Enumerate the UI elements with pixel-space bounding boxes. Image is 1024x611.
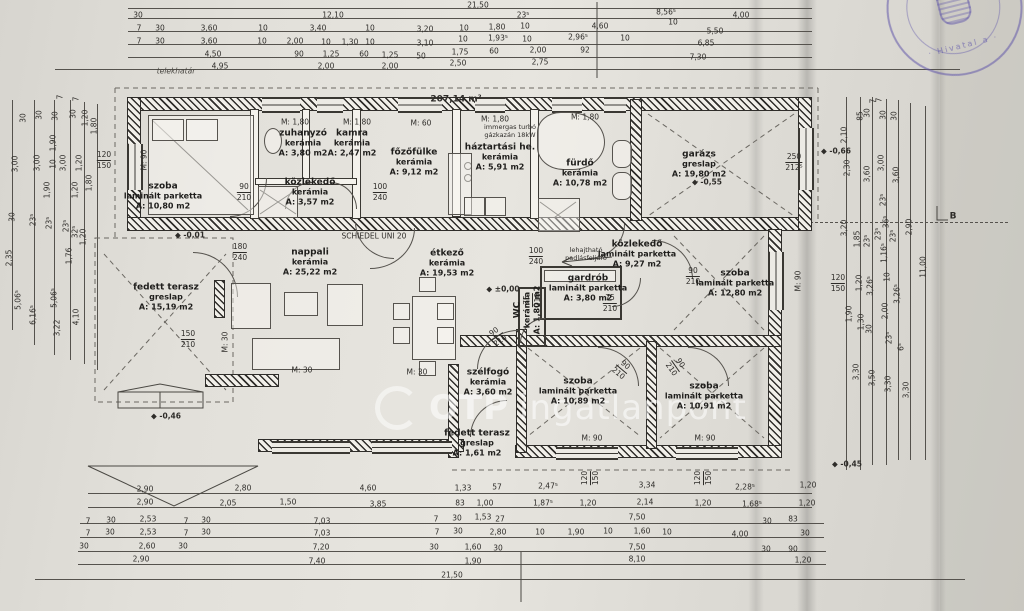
- dimension-label: telekhatár: [157, 67, 196, 75]
- dimension-label: 60: [359, 50, 369, 58]
- dimension-label: 1,20: [79, 229, 87, 246]
- dimension-label: 1,93⁵: [488, 34, 508, 42]
- dimension-label: 2,80: [490, 528, 507, 536]
- dimension-label: 1,20: [795, 556, 812, 564]
- dimension-label: 10: [668, 18, 678, 26]
- dimension-label: 10: [603, 527, 613, 535]
- dimension-label: 57: [492, 483, 502, 491]
- dimension-label: M: 90: [695, 434, 716, 442]
- dimension-label: 1,80: [489, 23, 506, 31]
- dimension-label: M: 1,80: [343, 118, 371, 126]
- dimension-label: 3,30: [884, 376, 892, 393]
- dimension-label: M: 1,80: [281, 118, 309, 126]
- dimension-label: 100240: [373, 183, 387, 201]
- dimension-label: 2,14: [637, 498, 654, 506]
- dimension-label: 3,34: [639, 481, 656, 489]
- dimension-label: 2,00: [530, 46, 547, 54]
- dimension-label: 30: [105, 528, 115, 536]
- label-layer: 21,503012,1023⁵8,56⁵4,007303,60103,40103…: [0, 0, 1024, 611]
- dimension-label: 7: [184, 517, 189, 525]
- dimension-label: 7: [137, 24, 142, 32]
- dimension-label: 1,20: [799, 499, 816, 507]
- dimension-label: 100240: [529, 247, 543, 265]
- dimension-label: 50: [416, 52, 426, 60]
- dimension-label: 1,90: [43, 182, 51, 199]
- room-label: nappalikerámiaA: 25,22 m2: [283, 247, 337, 276]
- dimension-label: 30: [452, 514, 462, 522]
- dimension-label: 11,00: [919, 256, 927, 277]
- room-label: fedett teraszgreslapA: 15,19 m2: [133, 282, 199, 311]
- dimension-label: 10: [535, 528, 545, 536]
- dimension-label: 10: [365, 24, 375, 32]
- dimension-label: 1,20: [800, 481, 817, 489]
- dimension-label: 10: [458, 35, 468, 43]
- dimension-label: 6⁵: [897, 343, 905, 351]
- dimension-label: 30: [201, 516, 211, 524]
- dimension-label: 30: [8, 212, 16, 222]
- dimension-label: 30: [761, 545, 771, 553]
- dimension-label: 3,00: [877, 155, 885, 172]
- dimension-label: 30: [863, 108, 871, 118]
- dimension-label: 12,10: [322, 11, 343, 19]
- dimension-label: 1,20: [855, 275, 863, 292]
- dimension-label: 7: [86, 529, 91, 537]
- dimension-label: 207,14 m²: [430, 96, 481, 105]
- dimension-label: 23⁵: [29, 214, 37, 227]
- dimension-label: M: 30: [292, 366, 313, 374]
- dimension-label: 2,90: [137, 485, 154, 493]
- dimension-label: 3,22: [53, 320, 61, 337]
- dimension-label: 23⁵: [45, 217, 53, 230]
- dimension-label: 10: [522, 35, 532, 43]
- dimension-label: 3,50: [868, 370, 876, 387]
- dimension-label: 30: [69, 109, 77, 119]
- dimension-label: 7,50: [629, 543, 646, 551]
- room-label: háztartási he.kerámiaA: 5,91 m2: [465, 142, 535, 171]
- dimension-label: 30: [35, 110, 43, 120]
- dimension-label: 3,20: [417, 25, 434, 33]
- dimension-label: 3,30: [902, 382, 910, 399]
- dimension-label: 3,30: [852, 364, 860, 381]
- dimension-label: 90: [294, 50, 304, 58]
- dimension-label: 10: [258, 24, 268, 32]
- dimension-label: 1,53: [475, 513, 492, 521]
- dimension-label: 23⁵: [879, 194, 887, 207]
- room-label: szobalaminált parkettaA: 12,80 m2: [696, 268, 774, 297]
- dimension-label: M: 1,80: [481, 115, 509, 123]
- dimension-label: 6,16⁵: [29, 305, 37, 325]
- dimension-label: 10: [520, 22, 530, 30]
- dimension-label: 4,10: [72, 309, 80, 326]
- dimension-label: 90210: [486, 325, 508, 348]
- dimension-label: 7,03: [314, 529, 331, 537]
- room-label: kamrakerámiaA: 2,47 m2: [328, 128, 377, 157]
- dimension-label: 4,00: [733, 11, 750, 19]
- dimension-label: 4,60: [592, 22, 609, 30]
- dimension-label: 8,10: [629, 555, 646, 563]
- dimension-label: 1,75: [452, 48, 469, 56]
- dimension-label: gázkazán 18kW: [484, 132, 535, 139]
- dimension-label: 21,50: [467, 1, 488, 9]
- room-label: szobalaminált parkettaA: 10,80 m2: [124, 181, 202, 210]
- dimension-label: 10: [257, 37, 267, 45]
- room-label: szobalaminált parkettaA: 10,91 m2: [665, 381, 743, 410]
- dimension-label: 1,76: [65, 248, 73, 265]
- dimension-label: 2,80: [235, 484, 252, 492]
- dimension-label: 30: [865, 324, 873, 334]
- dimension-label: 23⁵: [62, 220, 70, 233]
- dimension-label: 1,80: [85, 175, 93, 192]
- dimension-label: 1,20: [580, 499, 597, 507]
- dimension-label: 2,00: [287, 37, 304, 45]
- dimension-label: 4,50: [205, 50, 222, 58]
- dimension-label: 7: [434, 515, 439, 523]
- dimension-label: 30: [879, 110, 887, 120]
- dimension-label: 1,50: [280, 498, 297, 506]
- dimension-label: 7: [435, 528, 440, 536]
- room-label: szélfogókerámiaA: 3,60 m2: [464, 367, 513, 396]
- dimension-label: 7: [86, 517, 91, 525]
- dimension-label: 30: [106, 516, 116, 524]
- dimension-label: 2,30: [843, 160, 851, 177]
- dimension-label: 83: [788, 515, 798, 523]
- dimension-label: 2,00: [382, 62, 399, 70]
- dimension-label: 1,85: [853, 231, 861, 248]
- dimension-label: 3,00: [59, 155, 67, 172]
- dimension-label: 1,60: [634, 527, 651, 535]
- dimension-label: 2,90: [133, 555, 150, 563]
- dimension-label: 30: [890, 111, 898, 121]
- dimension-label: 1,25: [323, 50, 340, 58]
- dimension-label: 27: [495, 515, 505, 523]
- dimension-label: 1,90: [49, 135, 57, 152]
- room-label: szobalaminált parkettaA: 10,89 m2: [539, 376, 617, 405]
- dimension-label: 1,60: [465, 543, 482, 551]
- dimension-label: 2,53: [140, 528, 157, 536]
- room-label: gardróblaminált parkettaA: 3,80 m2: [549, 273, 627, 302]
- dimension-label: 2,60: [139, 542, 156, 550]
- dimension-label: 1,00: [477, 499, 494, 507]
- dimension-label: 4,95: [212, 62, 229, 70]
- dimension-label: 3,60: [201, 37, 218, 45]
- room-label: zuhanyzókerámiaA: 3,80 m2: [279, 128, 328, 157]
- dimension-label: 30: [155, 37, 165, 45]
- dimension-label: 3,26⁵: [893, 284, 901, 304]
- room-label: garázsgreslapA: 19,80 m2: [672, 149, 726, 178]
- dimension-label: 1,80: [90, 118, 98, 135]
- dimension-label: M: 90: [140, 150, 148, 171]
- dimension-label: 30: [493, 544, 503, 552]
- dimension-label: 1,90: [568, 528, 585, 536]
- dimension-label: 1,25: [382, 51, 399, 59]
- dimension-label: 2,10: [840, 127, 848, 144]
- room-label: főzőfülkekerámiaA: 9,12 m2: [390, 147, 439, 176]
- room-label: WCkerámiaA: 1,80 m2: [512, 286, 541, 335]
- dimension-label: 30: [429, 543, 439, 551]
- dimension-label: 5,06⁵: [14, 290, 22, 310]
- dimension-label: M: 90: [582, 434, 603, 442]
- dimension-label: 30: [133, 11, 143, 19]
- dimension-label: 83: [455, 499, 465, 507]
- dimension-label: 2,28⁵: [735, 483, 755, 491]
- dimension-label: 7,20: [313, 543, 330, 551]
- dimension-label: 1,20: [81, 110, 89, 127]
- dimension-label: 7,30: [690, 53, 707, 61]
- dimension-label: 7: [56, 95, 64, 100]
- dimension-label: 30: [201, 528, 211, 536]
- dimension-label: 90210: [237, 183, 251, 201]
- dimension-label: 5,06⁵: [50, 288, 58, 308]
- dimension-label: 2,50: [450, 59, 467, 67]
- dimension-label: 7: [137, 37, 142, 45]
- dimension-label: 180240: [233, 243, 247, 261]
- dimension-label: 2,47⁵: [538, 482, 558, 490]
- dimension-label: 8,56⁵: [656, 8, 676, 16]
- dimension-label: 3,00: [11, 156, 19, 173]
- dimension-label: 23⁵: [517, 11, 530, 19]
- dimension-label: 3,85: [370, 500, 387, 508]
- dimension-label: 2,00: [881, 303, 889, 320]
- dimension-label: 2,05: [220, 499, 237, 507]
- dimension-label: 2,35: [5, 250, 13, 267]
- dimension-label: 30: [51, 111, 59, 121]
- dimension-label: 1,16⁵: [880, 243, 888, 263]
- dimension-label: 120150: [694, 471, 712, 485]
- dimension-label: 90: [788, 545, 798, 553]
- level-marker: ◆ -0,66: [821, 147, 851, 155]
- dimension-label: 1,33: [455, 484, 472, 492]
- dimension-label: 7: [875, 98, 883, 103]
- dimension-label: 120150: [581, 471, 599, 485]
- dimension-label: 10: [883, 272, 891, 282]
- dimension-label: 3,60: [201, 24, 218, 32]
- dimension-label: 2,96⁵: [568, 33, 588, 41]
- dimension-label: 23⁵: [885, 332, 893, 345]
- dimension-label: M: 60: [411, 119, 432, 127]
- dimension-label: 7,50: [629, 513, 646, 521]
- dimension-label: 2,90: [137, 498, 154, 506]
- dimension-label: 3,40: [310, 24, 327, 32]
- dimension-label: 120150: [97, 151, 111, 169]
- dimension-label: 4,60: [360, 484, 377, 492]
- dimension-label: 10: [49, 159, 57, 169]
- dimension-label: 5,50: [707, 27, 724, 35]
- dimension-label: 30: [453, 527, 463, 535]
- dimension-label: 23⁵: [874, 228, 882, 241]
- dimension-label: 150210: [181, 330, 195, 348]
- dimension-label: SCHIEDEL UNI 20: [342, 232, 407, 240]
- dimension-label: 30: [762, 517, 772, 525]
- dimension-label: 3,26⁵: [866, 276, 874, 296]
- dimension-label: 7,40: [309, 557, 326, 565]
- room-label: fedett teraszgreslapA: 1,61 m2: [444, 428, 510, 457]
- dimension-label: 90210: [665, 355, 688, 377]
- dimension-label: 4,00: [732, 530, 749, 538]
- dimension-label: 2,53: [140, 515, 157, 523]
- dimension-label: 250212⁵: [785, 153, 802, 171]
- dimension-label: 36⁵: [882, 216, 890, 229]
- dimension-label: immergas turbó: [484, 124, 536, 131]
- dimension-label: 1,87⁵: [533, 499, 553, 507]
- dimension-label: 1,20: [695, 499, 712, 507]
- dimension-label: 92: [580, 46, 590, 54]
- dimension-label: 3,10: [417, 39, 434, 47]
- dimension-label: 6,85: [698, 39, 715, 47]
- dimension-label: 1,90: [845, 306, 853, 323]
- dimension-label: 7,03: [314, 517, 331, 525]
- dimension-label: 1,68⁵: [742, 500, 762, 508]
- dimension-label: 30: [155, 24, 165, 32]
- dimension-label: 10: [365, 38, 375, 46]
- dimension-label: 7: [72, 97, 80, 102]
- dimension-label: 23⁵: [863, 235, 871, 248]
- room-label: fürdőkerámiaA: 10,78 m2: [553, 158, 607, 187]
- dimension-label: 120150: [831, 274, 845, 292]
- dimension-label: 2,90: [905, 219, 913, 236]
- dimension-label: 10: [662, 528, 672, 536]
- dimension-label: 3,60: [863, 166, 871, 183]
- room-label: közlekedőkerámiaA: 3,57 m2: [285, 177, 336, 206]
- dimension-label: 1,90: [465, 557, 482, 565]
- dimension-label: 10: [321, 38, 331, 46]
- dimension-label: 3,20: [840, 220, 848, 237]
- dimension-label: M: 90: [794, 271, 802, 292]
- dimension-label: 30: [19, 113, 27, 123]
- room-label: közlekedőlaminált parkettaA: 9,27 m2: [598, 239, 676, 268]
- dimension-label: 30: [79, 542, 89, 550]
- dimension-label: 60: [489, 47, 499, 55]
- dimension-label: 3,60: [892, 167, 900, 184]
- level-marker: ◆ -0,46: [151, 412, 181, 420]
- dimension-label: B: [950, 213, 957, 222]
- dimension-label: 10: [459, 24, 469, 32]
- dimension-label: 1,20: [75, 155, 83, 172]
- level-marker: ◆ -0,55: [692, 178, 722, 186]
- dimension-label: 30: [178, 542, 188, 550]
- level-marker: ◆ -0,01: [175, 231, 205, 239]
- dimension-label: 3,00: [33, 155, 41, 172]
- dimension-label: 7: [184, 529, 189, 537]
- room-label: étkezőkerámiaA: 19,53 m2: [420, 248, 474, 277]
- dimension-label: 2,00: [318, 62, 335, 70]
- dimension-label: 23⁵: [889, 230, 897, 243]
- dimension-label: 30: [800, 529, 810, 537]
- dimension-label: 10: [620, 34, 630, 42]
- dimension-label: M: 1,80: [571, 113, 599, 121]
- dimension-label: M: 30: [407, 368, 428, 376]
- dimension-label: 21,50: [441, 571, 462, 579]
- level-marker: ◆ -0,45: [832, 460, 862, 468]
- dimension-label: 1,30: [342, 38, 359, 46]
- dimension-label: 2,75: [532, 58, 549, 66]
- dimension-label: M: 30: [221, 332, 229, 353]
- dimension-label: 1,20: [71, 182, 79, 199]
- scanned-floor-plan: OTP ingatlanpont · Hivatal a · 21,503012…: [0, 0, 1024, 611]
